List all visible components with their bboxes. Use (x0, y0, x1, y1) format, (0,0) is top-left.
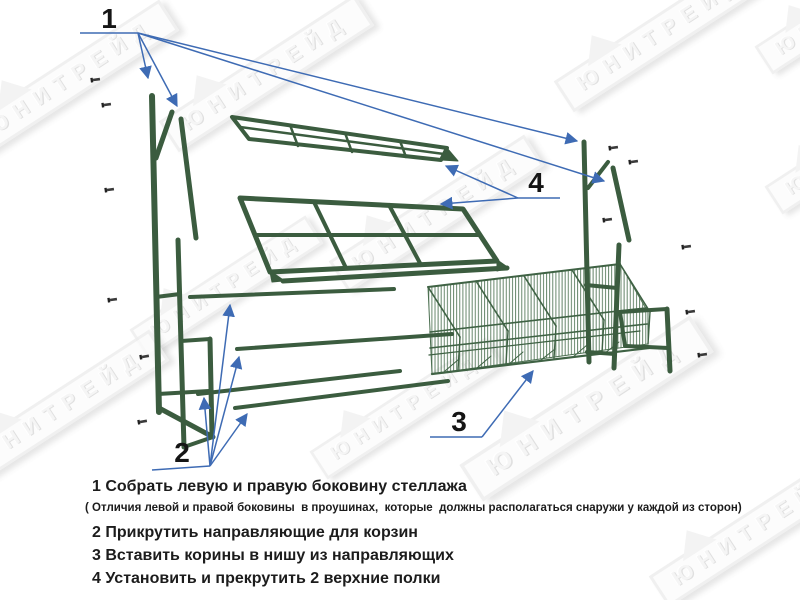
instruction-step-1: 1 Собрать левую и правую боковину стелла… (92, 478, 467, 496)
instruction-step-4: 4 Установить и прекрутить 2 верхние полк… (92, 570, 440, 588)
instruction-step-3: 3 Вставить корины в нишу из направляющих (92, 547, 454, 565)
instruction-step-2: 2 Прикрутить направляющие для корзин (92, 524, 418, 542)
callout-number-2: 2 (174, 439, 190, 467)
assembly-diagram-page: ЮНИТРЕЙД ЮНИТРЕЙД ЮНИТРЕЙД ЮНИТРЕЙД ЮНИТ… (0, 0, 800, 600)
callout-number-1: 1 (101, 5, 117, 33)
callout-number-4: 4 (528, 169, 544, 197)
callout-number-3: 3 (451, 408, 467, 436)
instruction-step-1-note: ( Отличия левой и правой боковины в проу… (85, 502, 742, 514)
lower-shelf (240, 198, 509, 282)
